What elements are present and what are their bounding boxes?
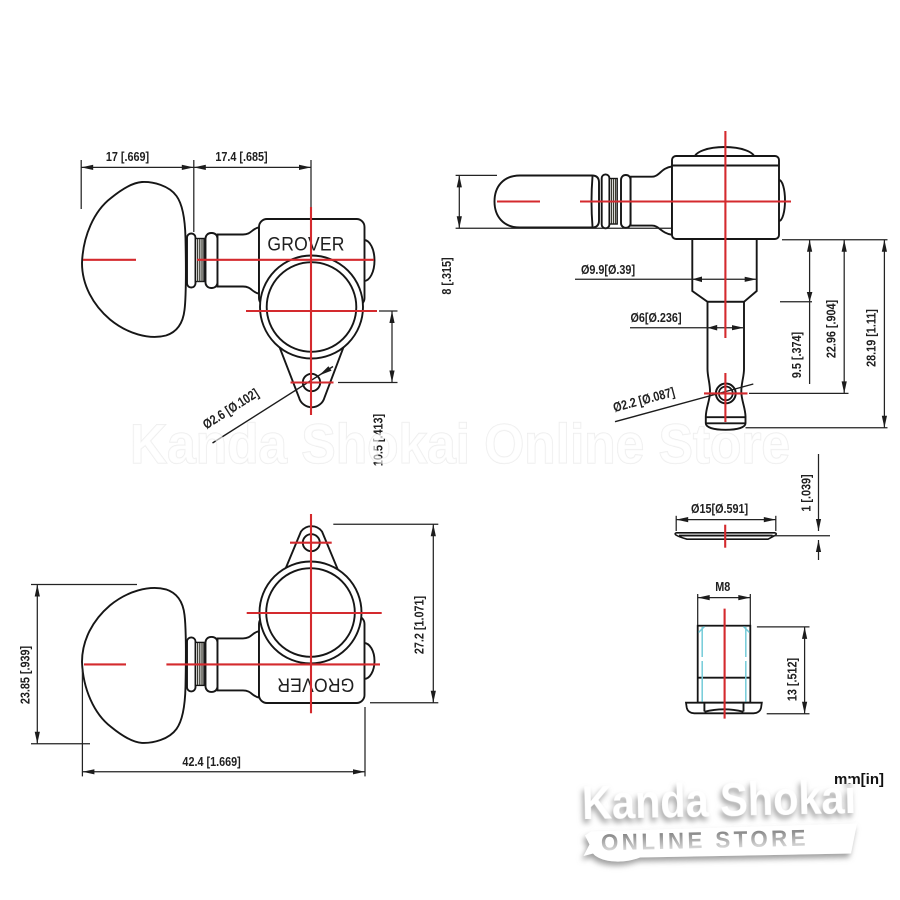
svg-text:42.4 [1.669]: 42.4 [1.669] <box>182 754 240 769</box>
svg-text:13 [.512]: 13 [.512] <box>784 658 799 701</box>
svg-text:22.96 [.904]: 22.96 [.904] <box>823 300 838 358</box>
svg-text:9.5 [.374]: 9.5 [.374] <box>789 332 804 378</box>
svg-text:Kanda Shokai Online Store: Kanda Shokai Online Store <box>130 412 790 475</box>
svg-text:17.4 [.685]: 17.4 [.685] <box>215 149 267 164</box>
svg-text:Ø2.2 [Ø.087]: Ø2.2 [Ø.087] <box>611 384 676 415</box>
svg-text:ONLINE STORE: ONLINE STORE <box>601 825 810 856</box>
svg-text:28.19 [1.11]: 28.19 [1.11] <box>863 309 878 367</box>
svg-text:17 [.669]: 17 [.669] <box>106 149 149 164</box>
svg-text:Kanda Shokai: Kanda Shokai <box>581 770 856 829</box>
svg-text:GROVER: GROVER <box>267 233 344 255</box>
svg-text:Ø15[Ø.591]: Ø15[Ø.591] <box>691 501 748 516</box>
svg-text:Ø9.9[Ø.39]: Ø9.9[Ø.39] <box>581 262 635 277</box>
svg-text:1 [.039]: 1 [.039] <box>798 474 813 511</box>
svg-text:M8: M8 <box>715 579 730 594</box>
svg-text:8 [.315]: 8 [.315] <box>439 257 454 294</box>
svg-text:27.2 [1.071]: 27.2 [1.071] <box>411 596 426 654</box>
svg-text:Ø6[Ø.236]: Ø6[Ø.236] <box>630 310 681 325</box>
svg-text:23.85 [.939]: 23.85 [.939] <box>17 646 32 704</box>
svg-text:GROVER: GROVER <box>277 674 354 696</box>
